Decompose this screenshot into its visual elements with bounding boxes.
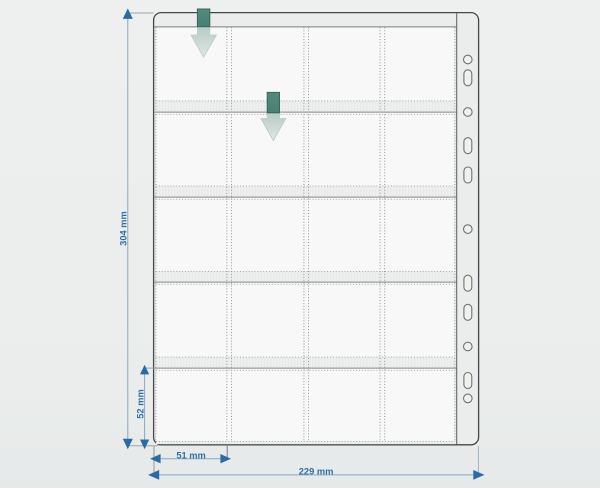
svg-text:51 mm: 51 mm	[176, 451, 205, 461]
svg-text:229 mm: 229 mm	[299, 466, 334, 476]
svg-text:52 mm: 52 mm	[136, 389, 146, 418]
svg-text:304 mm: 304 mm	[118, 211, 128, 246]
